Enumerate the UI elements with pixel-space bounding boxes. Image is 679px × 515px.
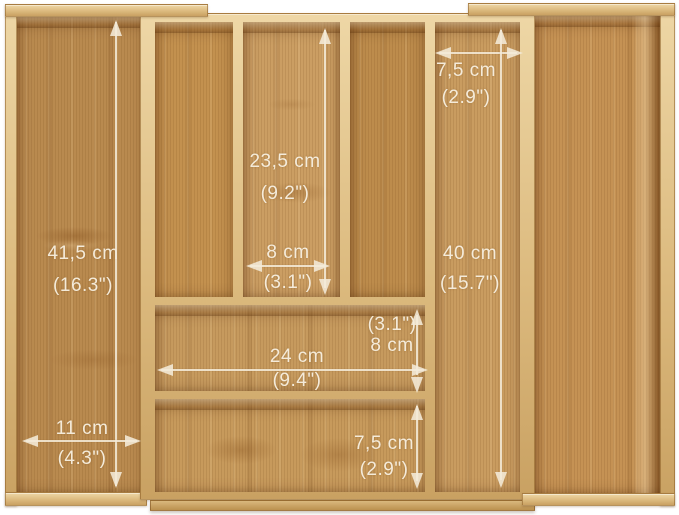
arrowhead-right-icon <box>507 47 523 59</box>
middle-tray-bottom-lip <box>150 500 535 511</box>
arrowhead-up-icon <box>411 404 423 420</box>
left-tray-left-wall <box>5 4 17 506</box>
dimension-metric-label: 7,5 cm <box>421 61 511 81</box>
arrowhead-right-icon <box>412 364 428 376</box>
right-tray-right-wall <box>660 3 675 506</box>
arrowhead-up-icon <box>110 20 122 36</box>
arrowhead-down-icon <box>411 473 423 489</box>
dimension-imperial-label: (3.1") <box>243 273 333 293</box>
right-tray-interior <box>535 16 660 493</box>
dimension-metric-label: 24 cm <box>252 347 342 367</box>
arrowhead-right-icon <box>314 260 330 272</box>
arrowhead-right-icon <box>125 435 141 447</box>
dimension-imperial-label: (9.4") <box>252 371 342 391</box>
left-tray-top-rim <box>5 4 208 17</box>
dimension-arrow-line <box>500 30 502 480</box>
arrowhead-up-icon <box>495 28 507 44</box>
dimension-arrow-line <box>26 440 137 442</box>
arrowhead-up-icon <box>411 309 423 325</box>
compartment-top-1 <box>155 22 233 297</box>
dimension-imperial-label: (9.2") <box>240 184 330 204</box>
dimension-arrow-line <box>115 22 117 486</box>
right-tray-top-rim <box>468 3 675 16</box>
product-dimension-image: 41,5 cm (16.3") 23,5 cm (9.2") 8 cm (3.1… <box>0 0 679 515</box>
dimension-imperial-label: (3.1") <box>347 315 437 335</box>
arrowhead-down-icon <box>495 472 507 488</box>
dimension-arrow-line <box>161 369 424 371</box>
arrowhead-left-icon <box>246 260 262 272</box>
left-tray-bottom-rim <box>5 492 147 506</box>
dimension-metric-label: 11 cm <box>37 419 127 439</box>
dimension-imperial-label: (2.9") <box>421 88 511 108</box>
arrowhead-left-icon <box>157 364 173 376</box>
dimension-metric-label: 8 cm <box>347 336 437 356</box>
arrowhead-left-icon <box>435 47 451 59</box>
compartment-top-3 <box>350 22 425 297</box>
dimension-metric-label: 23,5 cm <box>240 152 330 172</box>
arrowhead-down-icon <box>411 377 423 393</box>
arrowhead-left-icon <box>22 435 38 447</box>
arrowhead-down-icon <box>110 472 122 488</box>
dimension-imperial-label: (4.3") <box>37 449 127 469</box>
arrowhead-up-icon <box>319 28 331 44</box>
right-tray-bottom-rim <box>522 493 675 506</box>
